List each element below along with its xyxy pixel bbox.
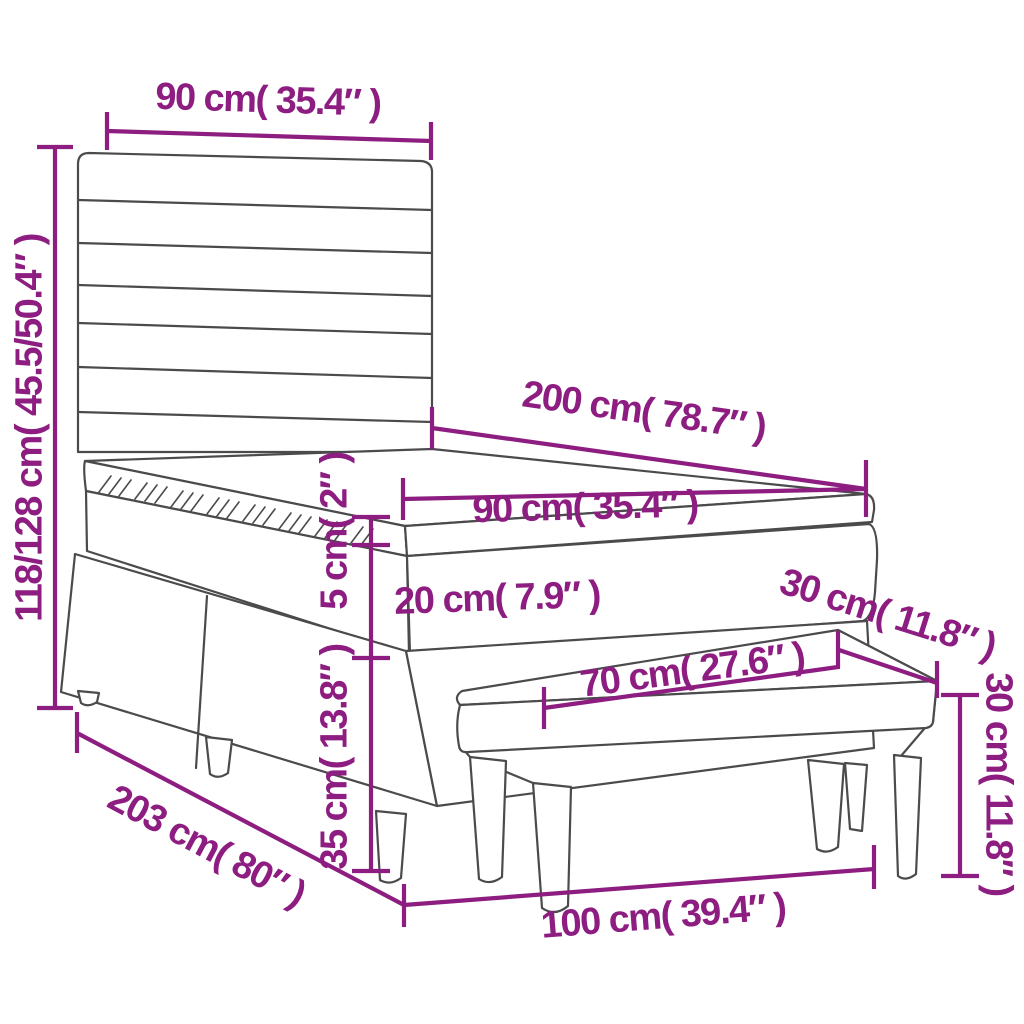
diagram-stage: 90 cm( 35.4″ ) 118/128 cm( 45.5/50.4″ ) … xyxy=(0,0,1024,1024)
dim-line-bench-height xyxy=(941,695,979,876)
dim-label-bench-height: 30 cm( 11.8″ ) xyxy=(978,672,1020,895)
line-art xyxy=(61,153,937,912)
dim-label-topper-thickness: 5 cm( 2″ ) xyxy=(313,452,355,609)
bench-leg-back-left xyxy=(470,757,506,882)
dim-label-headboard-width: 90 cm( 35.4″ ) xyxy=(155,76,382,125)
dim-line-bench-length xyxy=(404,845,874,905)
bed-leg-head xyxy=(78,691,99,705)
bench-leg-front-right xyxy=(894,755,921,879)
headboard-outline xyxy=(78,153,432,452)
dim-label-bench-length: 100 cm( 39.4″ ) xyxy=(539,886,787,947)
dim-label-mattress-thickness: 20 cm( 7.9″ ) xyxy=(394,574,601,623)
dim-label-base-height: 35 cm( 13.8″ ) xyxy=(313,644,355,869)
headboard xyxy=(78,153,432,452)
dim-label-mattress-width: 90 cm( 35.4″ ) xyxy=(472,483,698,531)
dim-label-bed-length: 200 cm( 78.7″ ) xyxy=(520,373,768,449)
bench-leg-right-inner xyxy=(808,760,844,852)
bed-dimension-diagram: 90 cm( 35.4″ ) 118/128 cm( 45.5/50.4″ ) … xyxy=(0,0,1024,1024)
dim-label-overall-height: 118/128 cm( 45.5/50.4″ ) xyxy=(8,234,50,622)
bed-leg-middle xyxy=(206,737,232,777)
dim-label-frame-length: 203 cm( 80″ ) xyxy=(101,777,312,916)
bench-leg-back-right xyxy=(845,763,867,831)
